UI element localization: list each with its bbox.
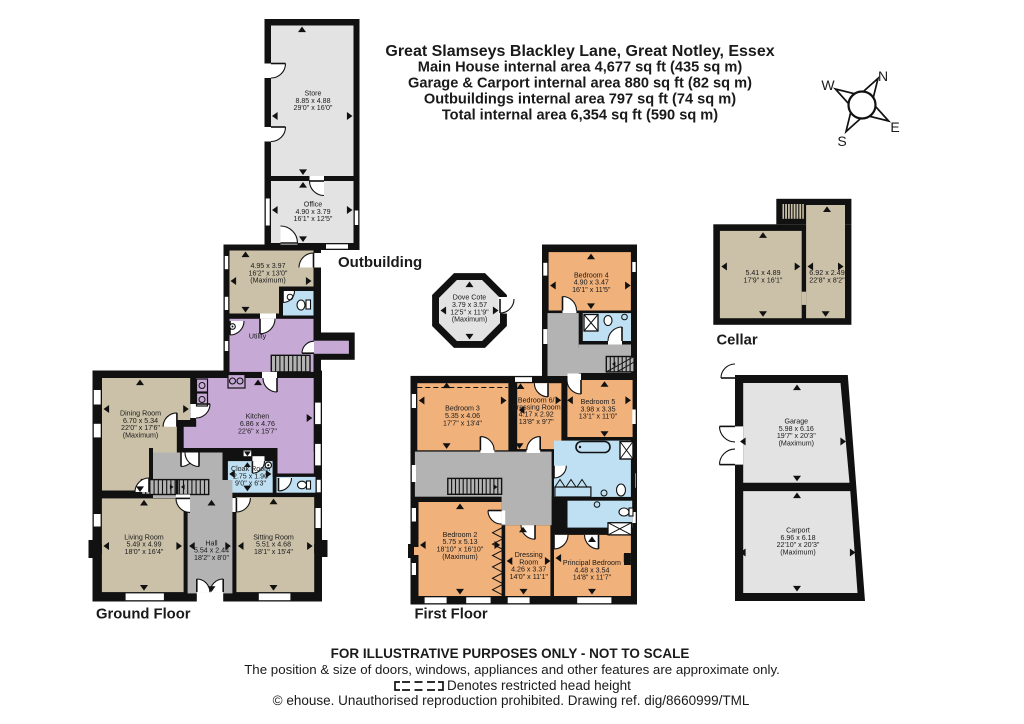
svg-text:(Maximum): (Maximum) (452, 316, 487, 324)
svg-text:17'7" x 13'4": 17'7" x 13'4" (443, 419, 482, 427)
svg-text:16'1" x 12'5": 16'1" x 12'5" (294, 215, 333, 223)
svg-text:16'1" x 11'5": 16'1" x 11'5" (572, 286, 611, 294)
svg-text:29'0" x 16'0": 29'0" x 16'0" (294, 104, 333, 112)
svg-text:Main House internal area 4,677: Main House internal area 4,677 sq ft (43… (418, 60, 743, 76)
svg-text:© ehouse. Unauthorised reprodu: © ehouse. Unauthorised reproduction proh… (273, 693, 750, 708)
svg-text:Ground Floor: Ground Floor (96, 607, 191, 623)
svg-text:17'9" x 16'1": 17'9" x 16'1" (744, 276, 783, 284)
svg-text:22'8" x 8'2": 22'8" x 8'2" (809, 275, 845, 284)
svg-text:Garage & Carport internal area: Garage & Carport internal area 880 sq ft… (408, 76, 752, 92)
svg-text:Outbuildings internal area 797: Outbuildings internal area 797 sq ft (74… (424, 92, 736, 108)
svg-text:18'1" x 15'4": 18'1" x 15'4" (254, 548, 293, 556)
svg-text:18'2" x 8'0": 18'2" x 8'0" (194, 554, 229, 562)
svg-text:W: W (821, 77, 835, 93)
svg-text:Utility: Utility (249, 333, 267, 341)
svg-text:14'0" x 11'1": 14'0" x 11'1" (510, 573, 549, 581)
svg-text:9'0" x 6'3": 9'0" x 6'3" (235, 480, 266, 488)
svg-text:13'1" x 11'0": 13'1" x 11'0" (579, 413, 618, 421)
svg-text:S: S (837, 133, 846, 149)
svg-text:(Maximum): (Maximum) (123, 432, 158, 440)
svg-text:The position & size of doors,: The position & size of doors, windows, a… (244, 662, 780, 677)
svg-text:(Maximum): (Maximum) (779, 439, 814, 447)
svg-text:(Maximum): (Maximum) (780, 548, 815, 556)
svg-text:18'0" x 16'4": 18'0" x 16'4" (125, 548, 164, 556)
svg-text:13'8" x 9'7": 13'8" x 9'7" (519, 418, 554, 426)
svg-text:Denotes restricted head height: Denotes restricted head height (447, 678, 631, 693)
svg-text:Great Slamseys Blackley Lane,: Great Slamseys Blackley Lane, Great Notl… (385, 43, 774, 60)
svg-text:FOR ILLUSTRATIVE PURPOSES ONLY: FOR ILLUSTRATIVE PURPOSES ONLY - NOT TO … (331, 646, 690, 661)
svg-text:N: N (878, 68, 888, 84)
svg-text:22'6" x 15'7": 22'6" x 15'7" (238, 427, 277, 435)
svg-text:(Maximum): (Maximum) (442, 553, 477, 561)
svg-text:Cellar: Cellar (717, 333, 758, 349)
svg-text:Outbuilding: Outbuilding (338, 254, 422, 271)
svg-text:E: E (890, 119, 899, 135)
svg-text:First Floor: First Floor (415, 607, 488, 623)
svg-text:(Maximum): (Maximum) (250, 277, 285, 285)
svg-text:Total internal area 6,354 sq f: Total internal area 6,354 sq ft (590 sq … (442, 108, 718, 124)
svg-text:14'8" x 11'7": 14'8" x 11'7" (573, 574, 612, 582)
